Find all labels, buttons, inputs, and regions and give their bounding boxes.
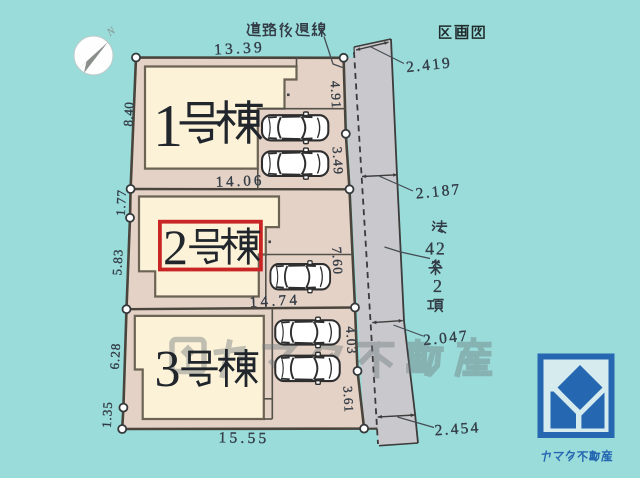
svg-text:3.49: 3.49 — [330, 146, 346, 175]
svg-text:3: 3 — [155, 341, 181, 398]
svg-text:14.06: 14.06 — [215, 173, 264, 191]
svg-text:3.61: 3.61 — [340, 386, 356, 413]
svg-text:1.35: 1.35 — [99, 401, 115, 428]
svg-text:2: 2 — [163, 219, 188, 275]
svg-text:6.28: 6.28 — [107, 342, 123, 369]
svg-text:4.03: 4.03 — [343, 326, 359, 355]
svg-text:1: 1 — [153, 93, 183, 159]
svg-text:2.454: 2.454 — [434, 419, 481, 439]
svg-text:1.77: 1.77 — [113, 189, 129, 216]
svg-text:7.60: 7.60 — [329, 246, 345, 275]
svg-text:13.39: 13.39 — [214, 39, 266, 59]
svg-text:4.91: 4.91 — [328, 80, 344, 109]
svg-text:2: 2 — [433, 276, 442, 296]
svg-text:14.74: 14.74 — [249, 292, 301, 311]
svg-text:5.83: 5.83 — [109, 248, 125, 275]
svg-text:8.40: 8.40 — [120, 101, 136, 127]
svg-text:42: 42 — [425, 239, 447, 259]
svg-text:15.55: 15.55 — [218, 429, 269, 447]
